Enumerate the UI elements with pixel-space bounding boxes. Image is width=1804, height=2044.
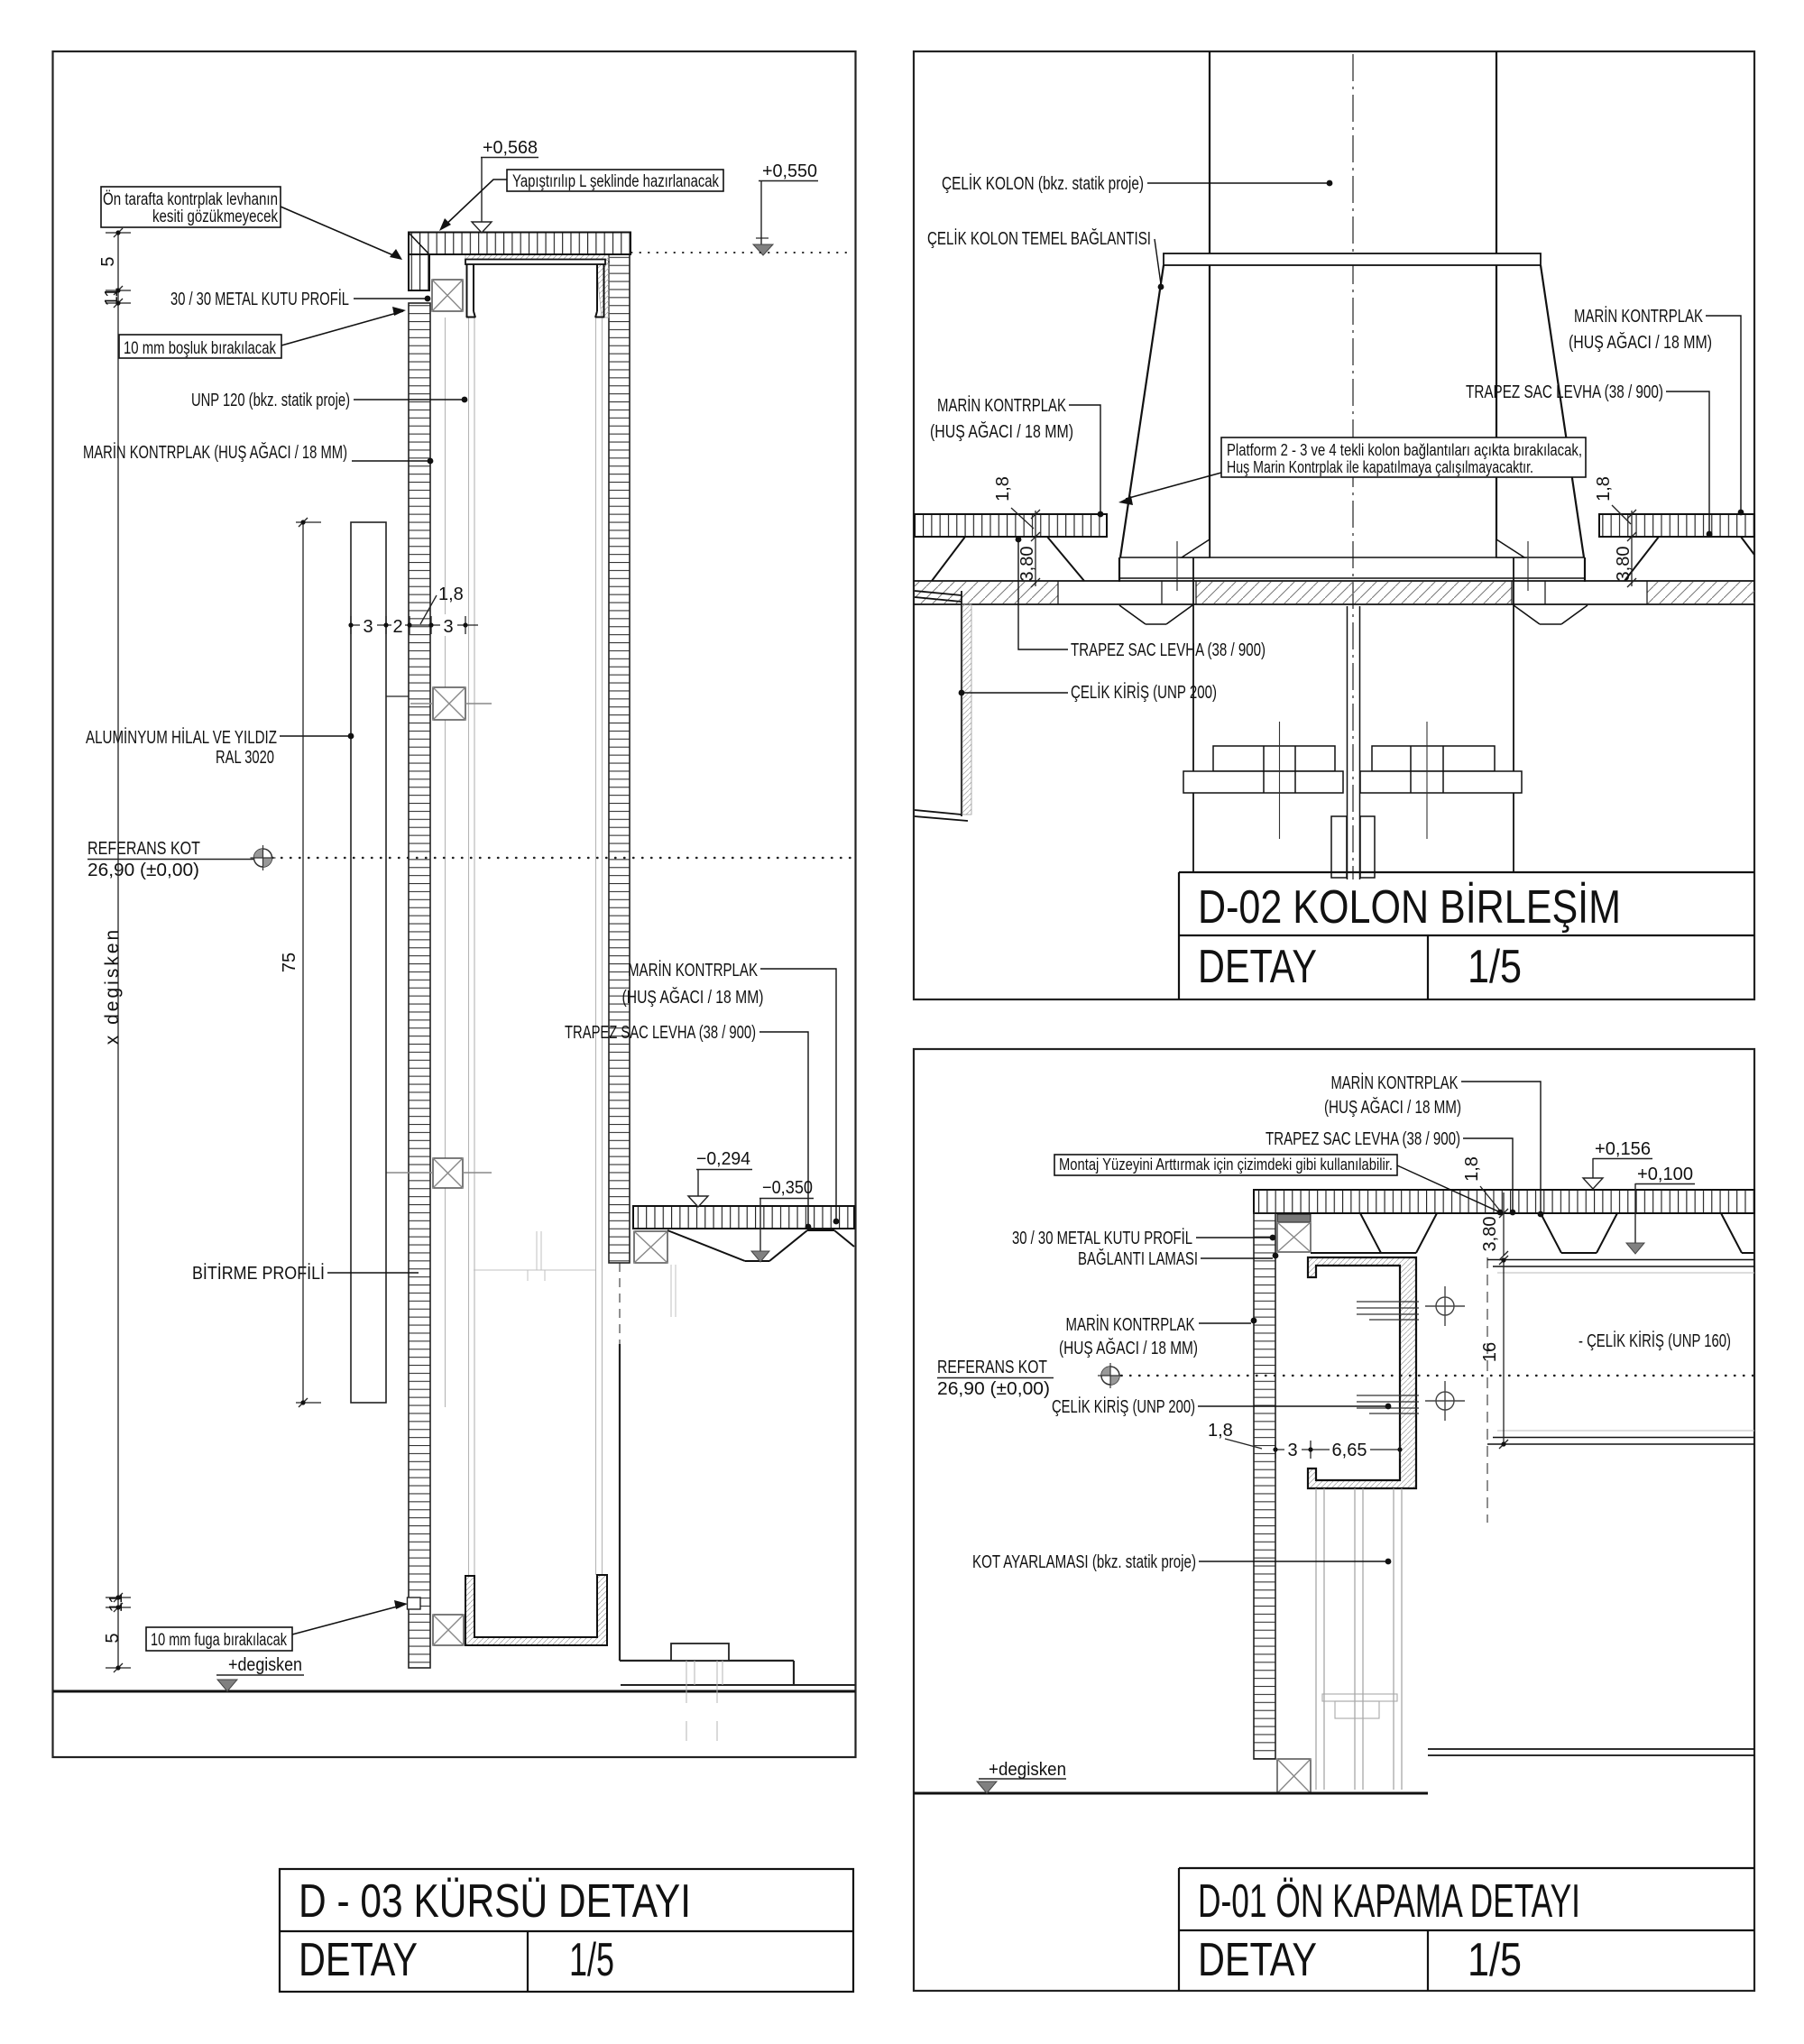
svg-text:ALUMİNYUM HİLAL VE YILDIZ: ALUMİNYUM HİLAL VE YILDIZ: [86, 727, 277, 748]
svg-text:−0,350: −0,350: [762, 1178, 813, 1198]
svg-text:3,80: 3,80: [1614, 547, 1634, 582]
svg-text:1,8: 1,8: [993, 476, 1013, 502]
svg-text:Yapıştırılıp L şeklinde hazırl: Yapıştırılıp L şeklinde hazırlanacak: [512, 172, 719, 191]
svg-text:ÇELİK KOLON (bkz. statik proje: ÇELİK KOLON (bkz. statik proje): [942, 173, 1144, 194]
svg-text:+degisken: +degisken: [989, 1760, 1066, 1780]
svg-text:(HUŞ AĞACI / 18 MM): (HUŞ AĞACI / 18 MM): [1059, 1338, 1198, 1358]
svg-text:MARİN KONTRPLAK: MARİN KONTRPLAK: [628, 960, 758, 981]
svg-text:(HUŞ AĞACI / 18 MM): (HUŞ AĞACI / 18 MM): [1569, 332, 1712, 353]
svg-text:DETAY: DETAY: [299, 1934, 418, 1986]
svg-text:ÇELİK KİRİŞ (UNP 200): ÇELİK KİRİŞ (UNP 200): [1052, 1396, 1195, 1417]
svg-text:MARİN KONTRPLAK: MARİN KONTRPLAK: [937, 395, 1066, 416]
svg-text:3,80: 3,80: [1017, 547, 1037, 582]
svg-text:REFERANS KOT: REFERANS KOT: [937, 1358, 1047, 1377]
svg-text:30 / 30 METAL KUTU PROFİL: 30 / 30 METAL KUTU PROFİL: [1012, 1228, 1192, 1248]
svg-text:11: 11: [106, 1594, 126, 1613]
svg-text:MARİN KONTRPLAK (HUŞ AĞACI /: MARİN KONTRPLAK (HUŞ AĞACI / 18 MM): [83, 442, 347, 463]
svg-text:MARİN KONTRPLAK: MARİN KONTRPLAK: [1331, 1073, 1459, 1093]
svg-text:+0,550: +0,550: [762, 161, 817, 181]
svg-text:10 mm fuga bırakılacak: 10 mm fuga bırakılacak: [151, 1631, 287, 1650]
svg-text:1/5: 1/5: [1468, 941, 1522, 993]
svg-text:(HUŞ AĞACI / 18 MM): (HUŞ AĞACI / 18 MM): [1324, 1097, 1461, 1118]
svg-text:TRAPEZ SAC LEVHA (38 / 900): TRAPEZ SAC LEVHA (38 / 900): [1466, 382, 1663, 402]
svg-text:26,90 (±0,00): 26,90 (±0,00): [87, 861, 199, 880]
svg-text:Huş Marin Kontrplak ile kapatı: Huş Marin Kontrplak ile kapatılmaya çalı…: [1227, 458, 1533, 476]
svg-text:1,8: 1,8: [1462, 1156, 1482, 1182]
svg-text:16: 16: [1480, 1342, 1500, 1362]
svg-text:6,65: 6,65: [1332, 1441, 1367, 1460]
svg-text:1,8: 1,8: [1594, 476, 1614, 502]
svg-text:Ön tarafta kontrplak levhanın: Ön tarafta kontrplak levhanın: [103, 190, 278, 209]
svg-text:Platform 2 - 3 ve 4 tekli kolo: Platform 2 - 3 ve 4 tekli kolon bağlantı…: [1227, 441, 1582, 459]
svg-text:x degisken: x degisken: [102, 927, 123, 1045]
svg-text:D-01 ÖN KAPAMA DETAYI: D-01 ÖN KAPAMA DETAYI: [1198, 1875, 1580, 1928]
svg-text:+0,156: +0,156: [1595, 1139, 1651, 1159]
svg-text:75: 75: [280, 953, 299, 972]
svg-text:1,8: 1,8: [438, 585, 464, 604]
svg-text:ÇELİK KOLON TEMEL BAĞLANTISI: ÇELİK KOLON TEMEL BAĞLANTISI: [927, 228, 1151, 249]
svg-text:30 / 30 METAL KUTU PROFİL: 30 / 30 METAL KUTU PROFİL: [170, 289, 349, 309]
svg-text:DETAY: DETAY: [1198, 941, 1317, 993]
svg-text:DETAY: DETAY: [1198, 1934, 1317, 1986]
svg-text:ÇELİK KİRİŞ (UNP 200): ÇELİK KİRİŞ (UNP 200): [1071, 682, 1217, 703]
svg-text:1/5: 1/5: [1468, 1934, 1522, 1986]
svg-text:MARİN KONTRPLAK: MARİN KONTRPLAK: [1066, 1314, 1195, 1335]
svg-text:BİTİRME PROFİLİ: BİTİRME PROFİLİ: [192, 1263, 325, 1284]
svg-text:REFERANS KOT: REFERANS KOT: [87, 839, 200, 859]
svg-text:(HUŞ AĞACI / 18 MM): (HUŞ AĞACI / 18 MM): [930, 421, 1073, 442]
svg-text:TRAPEZ SAC LEVHA (38 / 900): TRAPEZ SAC LEVHA (38 / 900): [1071, 640, 1266, 660]
svg-text:+0,100: +0,100: [1637, 1165, 1693, 1184]
svg-text:2: 2: [392, 617, 402, 637]
svg-text:D-02 KOLON BİRLEŞİM: D-02 KOLON BİRLEŞİM: [1198, 881, 1621, 934]
svg-text:10 mm boşluk bırakılacak: 10 mm boşluk bırakılacak: [124, 339, 276, 358]
svg-text:kesiti gözükmeyecek: kesiti gözükmeyecek: [152, 207, 278, 226]
svg-text:3: 3: [443, 617, 453, 637]
svg-text:5: 5: [98, 256, 118, 266]
svg-text:3: 3: [1287, 1441, 1297, 1460]
svg-text:BAĞLANTI LAMASI: BAĞLANTI LAMASI: [1078, 1248, 1198, 1269]
svg-text:5: 5: [103, 1633, 123, 1643]
svg-text:1/5: 1/5: [569, 1934, 614, 1986]
svg-text:+0,568: +0,568: [483, 138, 538, 158]
svg-text:D - 03 KÜRSÜ DETAYI: D - 03 KÜRSÜ DETAYI: [299, 1875, 691, 1928]
svg-text:MARİN KONTRPLAK: MARİN KONTRPLAK: [1574, 306, 1703, 327]
svg-text:TRAPEZ SAC LEVHA (38 / 900): TRAPEZ SAC LEVHA (38 / 900): [565, 1023, 756, 1043]
svg-text:KOT AYARLAMASI (bkz. statik pr: KOT AYARLAMASI (bkz. statik proje): [972, 1552, 1196, 1572]
svg-text:11: 11: [102, 288, 122, 307]
svg-text:3,80: 3,80: [1480, 1217, 1500, 1252]
svg-text:RAL 3020: RAL 3020: [216, 748, 274, 768]
svg-text:1,8: 1,8: [1208, 1421, 1233, 1441]
svg-text:−0,294: −0,294: [696, 1149, 750, 1169]
svg-text:TRAPEZ SAC LEVHA (38 / 900): TRAPEZ SAC LEVHA (38 / 900): [1266, 1129, 1460, 1149]
svg-text:(HUŞ AĞACI / 18 MM): (HUŞ AĞACI / 18 MM): [622, 987, 764, 1008]
svg-text:Montaj Yüzeyini Arttırmak için: Montaj Yüzeyini Arttırmak için çizimdeki…: [1059, 1156, 1393, 1174]
svg-text:26,90 (±0,00): 26,90 (±0,00): [937, 1379, 1050, 1399]
svg-text:UNP 120 (bkz. statik proje): UNP 120 (bkz. statik proje): [191, 391, 350, 410]
svg-text:+degisken: +degisken: [228, 1655, 302, 1675]
svg-text:- ÇELİK KİRİŞ (UNP 160): - ÇELİK KİRİŞ (UNP 160): [1578, 1330, 1731, 1351]
svg-text:3: 3: [363, 617, 373, 637]
